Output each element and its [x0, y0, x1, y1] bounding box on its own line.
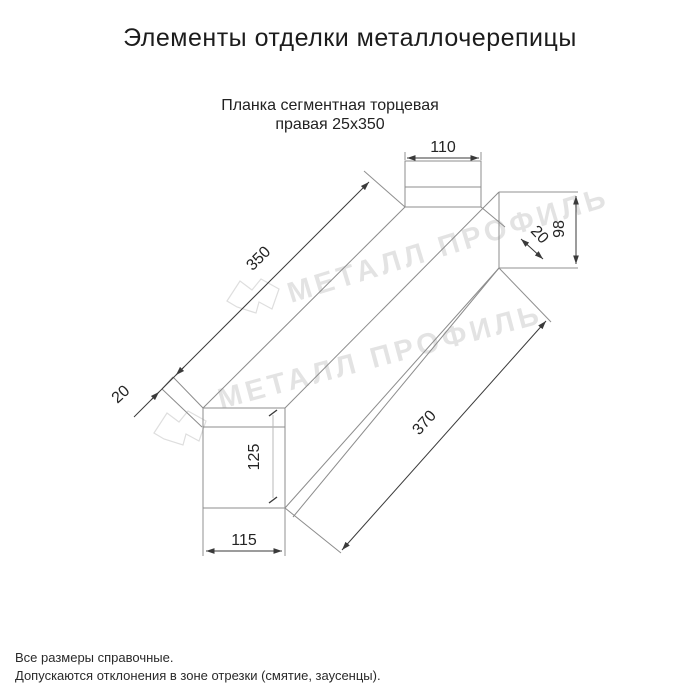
dim-label-350: 350	[243, 243, 274, 274]
technical-drawing: МЕТАЛЛ ПРОФИЛЬ МЕТАЛЛ ПРОФИЛЬ 1	[0, 0, 700, 700]
hem-flap-edge-b	[162, 389, 202, 427]
watermark-text: МЕТАЛЛ ПРОФИЛЬ	[284, 181, 613, 309]
watermark-lower: МЕТАЛЛ ПРОФИЛЬ	[154, 298, 546, 445]
dim-label-20-left: 20	[109, 382, 134, 407]
flange-end-face	[405, 161, 481, 207]
footer-notes: Все размеры справочные. Допускаются откл…	[15, 649, 381, 685]
long-edge-4	[293, 268, 499, 517]
dim-label-110: 110	[430, 139, 456, 156]
mini-arrow-low	[151, 392, 159, 400]
near-end-cut-edge	[285, 508, 341, 553]
dim-label-115: 115	[231, 532, 257, 549]
footer-note-2: Допускаются отклонения в зоне отрезки (с…	[15, 667, 381, 685]
watermark-text: МЕТАЛЛ ПРОФИЛЬ	[215, 298, 546, 416]
brand-logo-icon	[154, 411, 206, 445]
dim-label-98: 98	[551, 220, 568, 238]
watermark-upper: МЕТАЛЛ ПРОФИЛЬ	[227, 181, 613, 313]
footer-note-1: Все размеры справочные.	[15, 649, 381, 667]
dim-label-125: 125	[246, 444, 263, 471]
dimension-125: 125	[246, 410, 277, 503]
brand-logo-icon	[227, 279, 279, 313]
ext-line	[364, 171, 405, 207]
dimension-110: 110	[405, 139, 481, 160]
dimension-115: 115	[203, 508, 285, 556]
mini-arrow-high	[176, 367, 184, 375]
dim-label-370: 370	[409, 407, 440, 438]
